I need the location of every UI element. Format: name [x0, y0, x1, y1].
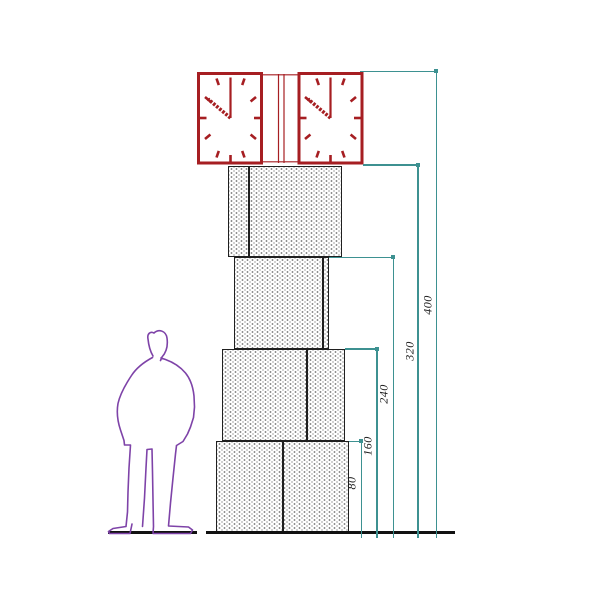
- dimension-line: [360, 71, 437, 73]
- block-1: [228, 166, 342, 257]
- dimension-marker: [434, 69, 438, 73]
- dimension-label: 320: [403, 341, 418, 361]
- block-3-edge: [306, 350, 308, 440]
- hour-hand-left: [208, 99, 231, 118]
- dimension-line: [393, 257, 395, 538]
- block-2: [234, 257, 329, 349]
- dimension-label: 80: [345, 477, 360, 490]
- clock-head: [190, 64, 380, 170]
- dimension-line: [329, 257, 394, 259]
- dimension-marker: [391, 255, 395, 259]
- dimension-line: [345, 348, 378, 350]
- dimension-label: 240: [377, 384, 392, 404]
- dimension-line: [436, 71, 438, 538]
- dimension-marker: [416, 163, 420, 167]
- dimension-line: [376, 348, 378, 538]
- dimension-marker: [359, 439, 363, 443]
- dimension-label: 400: [421, 295, 436, 315]
- block-4: [216, 441, 349, 533]
- clock-post: [262, 74, 299, 163]
- dimension-marker: [375, 347, 379, 351]
- block-3: [222, 349, 345, 441]
- elevation-drawing: 400 320 240 160 80: [0, 0, 600, 600]
- dimension-line: [361, 441, 363, 538]
- block-4-edge: [282, 442, 284, 532]
- block-1-edge: [248, 167, 250, 256]
- block-2-edge: [322, 258, 324, 348]
- dimension-line: [363, 164, 419, 166]
- hour-hand-right: [308, 99, 331, 118]
- human-figure-icon: [98, 320, 200, 538]
